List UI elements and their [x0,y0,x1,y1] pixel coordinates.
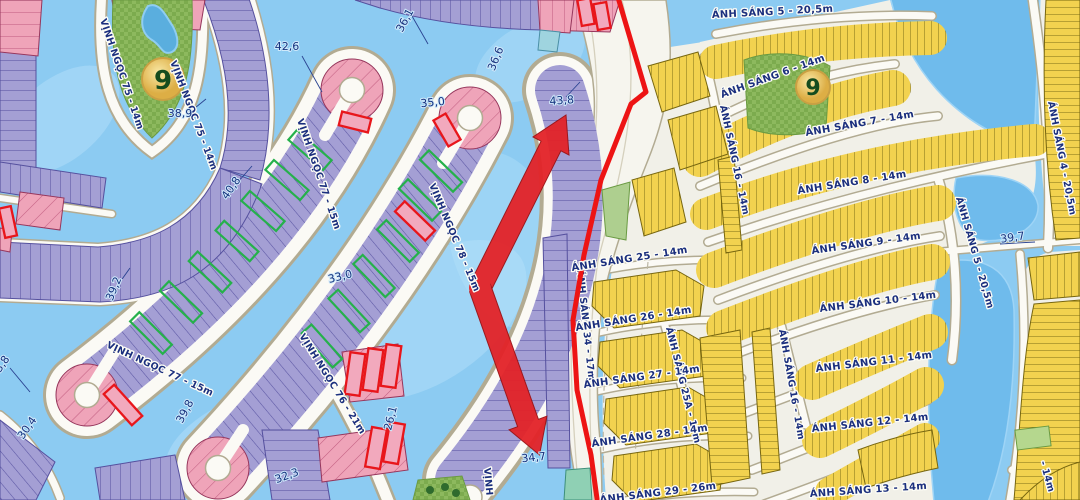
water-dim: 34,7 [521,450,547,465]
parcel-block[interactable] [0,0,42,56]
water-dim: 43,8 [549,93,574,108]
parcel-block[interactable] [538,30,560,52]
parcel-block[interactable] [16,192,64,230]
parcel-block[interactable] [543,234,570,468]
master-plan-map[interactable]: 9 9 ÁNH SÁNG 34 - 17m ÁNH SÁNG 5 - 20,5m… [0,0,1080,500]
water-dim: 38,9 [168,107,193,120]
water-dim: 42,6 [275,40,300,53]
parcel-block[interactable] [0,52,36,168]
parcel-block[interactable] [1028,252,1080,300]
park-triangle [602,182,630,240]
water-dim: 35,0 [420,95,446,110]
hole-9-number: 9 [805,76,820,101]
hole-9-number: 9 [154,66,172,96]
parcel-green[interactable] [1015,426,1051,450]
parcel-block[interactable] [564,468,592,500]
parcel-block[interactable] [538,0,574,33]
